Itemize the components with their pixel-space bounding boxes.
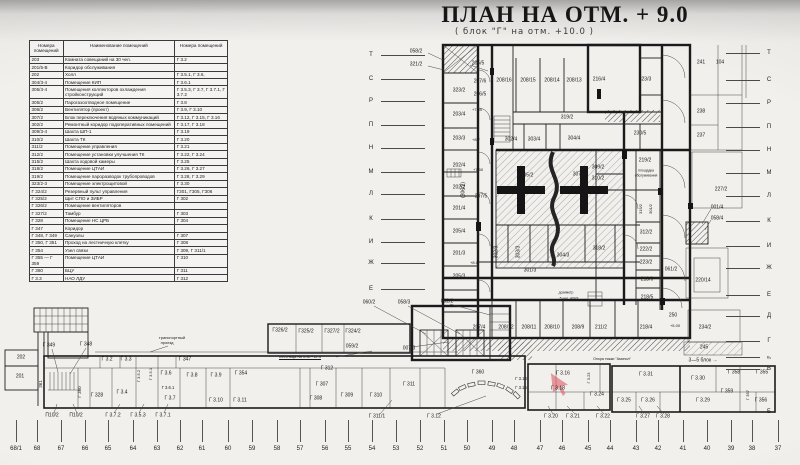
room-label: 321/2 (410, 63, 423, 68)
room-label: (306/2) (462, 182, 467, 198)
grid-axis-letter: К (369, 216, 373, 222)
room-label: Г 3.8 (186, 374, 197, 379)
room-label: П10/2 (69, 414, 82, 419)
room-label: Г 312 (321, 367, 333, 372)
room-label: Г 358 (728, 371, 740, 376)
room-label: Г 354 (235, 372, 247, 377)
grid-axis-letter: М (767, 170, 772, 176)
room-label: Г324/2 (345, 330, 360, 335)
room-label: Г 311 (403, 383, 415, 388)
room-label: 001/4 (711, 206, 724, 211)
grid-axis-line (381, 101, 425, 102)
axis-number: 45 (585, 446, 592, 452)
room-label: Г 311/1 (369, 415, 385, 420)
room-label: Г 3.6 (160, 372, 171, 377)
axis-tick (492, 420, 493, 442)
grid-axis-line (381, 242, 425, 243)
axis-number: 40 (704, 446, 711, 452)
axis-number: 57 (297, 446, 304, 452)
room-label: 216/4 (593, 78, 606, 83)
room-label: Г 3.14 (515, 377, 527, 381)
axis-tick (396, 420, 397, 442)
grid-axis-line (726, 150, 760, 151)
axis-tick (325, 420, 326, 442)
axis-number: 65 (105, 446, 112, 452)
room-label: 218/4 (640, 326, 653, 331)
axis-number: 64 (130, 446, 137, 452)
room-label: 058/2 (410, 50, 423, 55)
axis-number: 53 (393, 446, 400, 452)
room-label: 002/2 (441, 300, 454, 305)
room-label: Г 3.26 (641, 399, 655, 404)
room-label: 223/2 (640, 261, 653, 266)
room-label: 301/2 (649, 204, 653, 214)
room-label: Г 347 (179, 358, 191, 363)
room-label: Г 3.11 (233, 399, 246, 404)
room-label: 207/4 (473, 326, 486, 331)
room-label: 238 (697, 110, 705, 115)
room-label: 211/2 (595, 326, 607, 331)
room-label: +8.0 (470, 261, 478, 265)
grid-axis-letter: Т (369, 52, 373, 58)
room-label: Г 307 (316, 383, 328, 388)
axis-tick (444, 420, 445, 442)
room-label: лестница на отм.+12.5 (279, 355, 321, 359)
axis-tick (731, 420, 732, 442)
room-label: 201 (16, 375, 24, 380)
room-label: Г 3.5.2 (137, 370, 141, 382)
room-label: Г 3.16 (556, 372, 570, 377)
axis-number: 41 (680, 446, 687, 452)
axis-tick (157, 420, 158, 442)
axis-number: 49 (489, 446, 496, 452)
axis-tick (37, 420, 38, 442)
room-label: 303/4 (528, 138, 541, 143)
axis-number: 43 (633, 446, 640, 452)
axis-number: 55 (345, 446, 352, 452)
axis-tick (562, 420, 563, 442)
room-label: 208/15 (520, 79, 535, 84)
room-label: Г 3.30 (691, 377, 705, 382)
axis-number: 63 (154, 446, 161, 452)
axis-tick (277, 420, 278, 442)
grid-axis-letter: М (369, 169, 374, 175)
axis-tick (514, 420, 515, 442)
room-label: Г326/2 (272, 329, 287, 334)
room-label: 310/2 (592, 177, 605, 182)
grid-axis-line (726, 196, 760, 197)
grid-axis-letter: Р (369, 98, 373, 104)
room-label: 323/3 (639, 78, 652, 83)
room-label: 208/12 (498, 326, 513, 331)
room-label: Г 328 (91, 394, 103, 399)
room-label: 234/2 (699, 326, 712, 331)
room-label: 203/3 (453, 137, 466, 142)
room-label: Г 360 (472, 371, 484, 376)
room-label: 312/2 (640, 231, 653, 236)
room-label: 227/2 (715, 188, 728, 193)
grid-axis-line (381, 172, 425, 173)
room-label: 3—5 блок → (689, 359, 718, 364)
room-label: Г 3.5.1 (149, 368, 153, 380)
room-label: +5.00 (670, 324, 680, 328)
room-label: 208/10 (544, 326, 559, 331)
grid-axis-letter: П (767, 124, 771, 130)
room-label: Г 3.20 (544, 415, 558, 420)
grid-axis-letter: Е (767, 292, 771, 298)
axis-tick (683, 420, 684, 442)
room-label: 060/2 (363, 301, 376, 306)
room-label: 309/2 (592, 166, 605, 171)
grid-axis-letter: Л (767, 193, 771, 199)
room-label: 302/3 (495, 246, 500, 259)
grid-axis-letter: Р (767, 100, 771, 106)
grid-axis-line (726, 295, 760, 296)
room-label: 058/3 (398, 301, 411, 306)
room-label: 061/2 (665, 268, 678, 273)
room-label: Г 3.12 (427, 415, 441, 420)
axis-tick (180, 420, 181, 442)
room-label: 058/4 (711, 217, 724, 222)
room-label: 207/5 (475, 195, 488, 200)
axis-number: 61 (199, 446, 206, 452)
room-label: 315/2 (639, 204, 643, 214)
axis-number: 66 (82, 446, 89, 452)
room-label: 218/5 (641, 296, 654, 301)
room-label: 208/14 (544, 79, 559, 84)
room-label: +7.50 (472, 108, 482, 112)
room-label: 303/3 (517, 246, 522, 259)
grid-axis-letter: Б (767, 409, 771, 415)
grid-axis-letter: Ж (368, 260, 374, 266)
room-label: Г325/2 (298, 330, 313, 335)
room-label: Г 348 (80, 343, 92, 348)
room-label: 361 (39, 380, 44, 388)
room-label: 205/5 (472, 62, 485, 67)
room-label: Г 3.25 (617, 399, 631, 404)
axis-tick (16, 420, 17, 442)
axis-tick (372, 420, 373, 442)
grid-axis-letter: П (369, 122, 373, 128)
room-label: 245 (700, 346, 708, 351)
room-label: 059/2 (346, 345, 359, 350)
grid-axis-line (726, 369, 760, 370)
grid-axis-letter: С (767, 77, 771, 83)
axis-tick (778, 420, 779, 442)
room-label: 222/2 (640, 248, 653, 253)
room-label: Г 3.27 (636, 415, 650, 420)
axis-number: 68/1 (10, 446, 22, 452)
grid-axis-letter: Д (767, 313, 771, 319)
room-label: 208/11 (522, 326, 537, 331)
room-label: 208/13 (566, 79, 581, 84)
axis-number: 54 (369, 446, 376, 452)
axis-tick (540, 420, 541, 442)
grid-axis-line (726, 412, 760, 413)
grid-axis-line (381, 263, 425, 264)
grid-axis-letter: Л (369, 191, 373, 197)
room-label: 104 (716, 61, 724, 66)
grid-axis-letter: И (767, 243, 771, 249)
room-label: 323/2 (453, 89, 466, 94)
grid-axis-line (726, 316, 760, 317)
room-label: 201/4 (453, 207, 466, 212)
room-label: 208/16 (496, 79, 511, 84)
room-label: Г 3.15 (515, 386, 527, 390)
grid-axis-letter: Г (767, 338, 770, 344)
room-label: 007/3 (403, 347, 416, 352)
room-label: 218/6 (641, 278, 654, 283)
room-label: Г 3.23 (587, 372, 591, 383)
room-label: Г 3.18 (551, 387, 565, 392)
room-label: Г 3.9 (210, 374, 221, 379)
room-label: Г 3.4 (116, 391, 127, 396)
room-label: 302/4 (505, 138, 518, 143)
axis-tick (420, 420, 421, 442)
room-label: Г 357 (746, 390, 750, 400)
grid-axis-line (726, 103, 760, 104)
grid-axis-line (381, 219, 425, 220)
axis-tick (300, 420, 301, 442)
room-label: 230/5 (634, 132, 647, 137)
grid-axis-line (726, 246, 760, 247)
axis-tick (228, 420, 229, 442)
grid-axis-letter: С (369, 76, 373, 82)
axis-number: 52 (417, 446, 424, 452)
axis-number: 68 (34, 446, 41, 452)
room-label: Г 310 (370, 394, 382, 399)
grid-axis-letter: Т (767, 50, 771, 56)
grid-axis-letter: К (767, 218, 771, 224)
axis-tick (610, 420, 611, 442)
grid-axis-line (726, 221, 760, 222)
room-label: дозиметр (559, 291, 574, 294)
grid-axis-line (726, 173, 760, 174)
grid-axis-letter: В (767, 366, 771, 372)
axis-number: 67 (58, 446, 65, 452)
axis-number: 56 (322, 446, 329, 452)
room-label: Г 3.22 (596, 415, 610, 420)
axis-number: 42 (655, 446, 662, 452)
room-label: 203/4 (453, 113, 466, 118)
grid-axis-letter: Ж (766, 265, 772, 271)
hatch-areas (443, 45, 742, 360)
room-label: 319/2 (561, 116, 574, 121)
room-label: П10/2 (45, 414, 58, 419)
blueprint-page: ПЛАН НА ОТМ. + 9.0 ( блок "Г" на отм. +1… (0, 0, 800, 465)
room-label: 304/3 (557, 254, 570, 259)
room-label: площадка (638, 169, 654, 172)
room-label: Г 3.7.1 (155, 414, 170, 419)
axis-tick (202, 420, 203, 442)
grid-axis-line (726, 80, 760, 81)
room-label: Г 3.24 (590, 393, 604, 398)
axis-number: 62 (177, 446, 184, 452)
room-label: 205/4 (453, 230, 466, 235)
room-label: Г 3.31 (639, 373, 653, 378)
axis-number: 47 (537, 446, 544, 452)
grid-axis-line (381, 79, 425, 80)
grid-axis-line (726, 127, 760, 128)
axis-tick (108, 420, 109, 442)
grid-axis-line (726, 53, 760, 54)
room-label: 307/2 (573, 173, 586, 178)
room-label: +8.7 (472, 138, 480, 142)
grid-axis-line (381, 289, 425, 290)
axis-tick (348, 420, 349, 442)
room-label: Г 349 (43, 344, 55, 349)
grid-axis-line (726, 357, 760, 358)
axis-number: 38 (749, 446, 756, 452)
axis-tick (752, 420, 753, 442)
room-label: 206/5 (474, 93, 487, 98)
axis-tick (61, 420, 62, 442)
room-label: Г 3.2 (101, 358, 112, 363)
room-label: Г 3.21 (566, 415, 580, 420)
grid-axis-line (381, 148, 425, 149)
room-label: Г 308 (310, 397, 322, 402)
room-label: 205/3 (453, 275, 466, 280)
grid-axis-letter: В₁ (767, 355, 771, 360)
axis-tick (588, 420, 589, 442)
grid-axis-line (381, 125, 425, 126)
axis-number: 39 (728, 446, 735, 452)
axis-number: 37 (775, 446, 782, 452)
axis-tick (85, 420, 86, 442)
axis-tick (252, 420, 253, 442)
room-label: Г 359 (721, 390, 733, 395)
room-label: 201/3 (453, 252, 466, 257)
room-label: Г 3.7 (164, 397, 175, 402)
room-label: 250 (669, 314, 677, 319)
room-label: 318/2 (593, 247, 606, 252)
axis-tick (636, 420, 637, 442)
axis-number: 44 (607, 446, 614, 452)
grid-axis-line (726, 341, 760, 342)
room-label: 5 чел. 403/3 (560, 297, 579, 300)
axis-tick (467, 420, 468, 442)
room-label: +7.50 (473, 168, 483, 172)
axis-number: 51 (441, 446, 448, 452)
grid-axis-letter: Н (369, 145, 373, 151)
room-label: 202 (17, 356, 25, 361)
axis-number: 46 (559, 446, 566, 452)
room-label: 202/4 (453, 164, 466, 169)
room-label: Г 3.5.3 (130, 414, 145, 419)
room-label: 219/2 (639, 159, 652, 164)
room-label: 220/14 (695, 279, 710, 284)
axis-number: 59 (249, 446, 256, 452)
grid-axis-line (381, 55, 425, 56)
room-label: Г 3.6.1 (162, 386, 175, 390)
room-label: Г 3.7.2 (105, 414, 120, 419)
axis-tick (133, 420, 134, 442)
room-label: 241 (697, 61, 705, 66)
room-label: Г327/2 (324, 330, 339, 335)
room-label: 304/4 (568, 137, 581, 142)
grid-axis-letter: Н (767, 147, 771, 153)
room-label: Опора тяжки "Аминол" (593, 358, 631, 362)
room-label: 305/2 (521, 174, 534, 179)
room-label: Г 3.29 (696, 399, 710, 404)
room-label: 207/6 (474, 80, 487, 85)
room-label: Г 3.10 (209, 399, 223, 404)
room-label: Г 356 (755, 399, 767, 404)
room-label: обслуживания (635, 174, 658, 177)
grid-axis-line (381, 194, 425, 195)
room-label: 301/3 (524, 269, 537, 274)
axis-tick (707, 420, 708, 442)
room-label: Г 309 (341, 394, 353, 399)
axis-number: 48 (511, 446, 518, 452)
grid-axis-line (726, 268, 760, 269)
axis-number: 58 (274, 446, 281, 452)
room-label: Г 3.3 (120, 358, 131, 363)
axis-number: 50 (464, 446, 471, 452)
grid-axis-letter: И (369, 239, 373, 245)
axis-number: 60 (225, 446, 232, 452)
room-label: проезд (161, 341, 174, 345)
axis-tick (658, 420, 659, 442)
room-label: Г 3.28 (656, 415, 670, 420)
room-label: 208/9 (572, 326, 585, 331)
grid-axis-letter: Е (369, 286, 373, 292)
room-label: 237 (697, 134, 705, 139)
room-label: Г 350 (78, 386, 83, 397)
